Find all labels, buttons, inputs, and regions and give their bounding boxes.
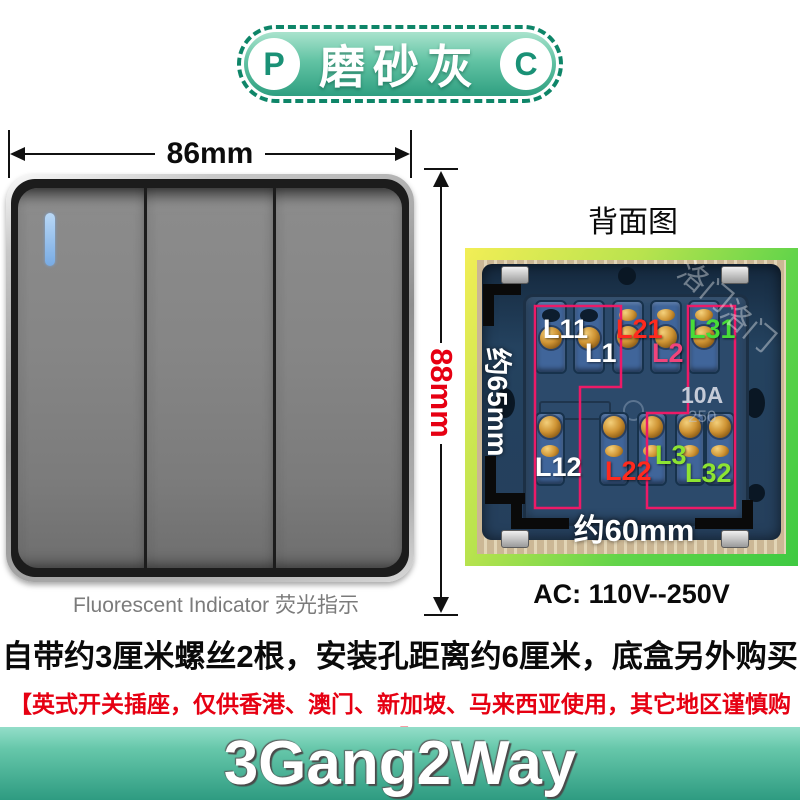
arrowhead-left-icon	[10, 147, 25, 161]
width-dimension-label: 86mm	[155, 137, 266, 171]
terminal-label: L11	[543, 316, 588, 343]
dimension-line	[440, 444, 442, 600]
dimension-line	[25, 153, 155, 155]
height-dimension-label: 88mm	[423, 348, 459, 438]
terminal-label: L3	[655, 442, 687, 469]
rocker-2	[147, 188, 273, 568]
note-screws: 自带约3厘米螺丝2根，安装孔距离约6厘米，底盒另外购买	[0, 631, 800, 676]
dimension-bracket	[511, 518, 569, 529]
width-dimension: 86mm	[8, 130, 412, 178]
dimension-bracket	[742, 500, 753, 528]
current-rating-label: 10A	[681, 382, 723, 409]
arrowhead-right-icon	[395, 147, 410, 161]
terminal-label: L2	[652, 340, 684, 367]
dimension-line	[440, 185, 442, 343]
switch-rockers	[18, 188, 402, 568]
back-view-photo: L11 L1 L21 L2 L31 L12 L22 L3 L32 10A 250…	[477, 260, 786, 554]
dimension-tick	[410, 130, 412, 178]
dimension-bracket	[483, 284, 494, 326]
dimension-line	[265, 153, 395, 155]
voltage-rating-label: 250	[688, 407, 716, 427]
badge-letter-p: P	[248, 38, 300, 90]
dimension-tick	[424, 168, 458, 170]
terminal-label: L32	[685, 460, 732, 487]
product-type-banner: 3Gang2Way	[0, 727, 800, 800]
color-badge: P 磨砂灰 C	[237, 25, 563, 103]
fluorescent-indicator-strip	[45, 213, 55, 266]
terminal-label: L12	[535, 454, 582, 481]
back-view-image: L11 L1 L21 L2 L31 L12 L22 L3 L32 10A 250…	[465, 248, 798, 566]
badge-letter-c: C	[500, 38, 552, 90]
switch-front-panel	[6, 174, 414, 582]
terminal-label: L22	[605, 458, 652, 485]
switch-panel-frame	[11, 179, 409, 577]
arrowhead-down-icon	[433, 597, 449, 613]
rocker-1	[18, 188, 144, 568]
product-type-label: 3Gang2Way	[224, 733, 577, 795]
back-width-label: 约60mm	[569, 505, 699, 550]
back-view-title: 背面图	[588, 197, 678, 241]
color-badge-pill: P 磨砂灰 C	[244, 32, 556, 96]
back-height-label: 约65mm	[479, 348, 519, 457]
voltage-range-label: AC: 110V--250V	[465, 579, 798, 610]
color-name-label: 磨砂灰	[319, 31, 481, 97]
rocker-3	[276, 188, 402, 568]
front-caption: Fluorescent Indicator 荧光指示	[0, 589, 432, 619]
terminal-label: L1	[585, 340, 617, 367]
